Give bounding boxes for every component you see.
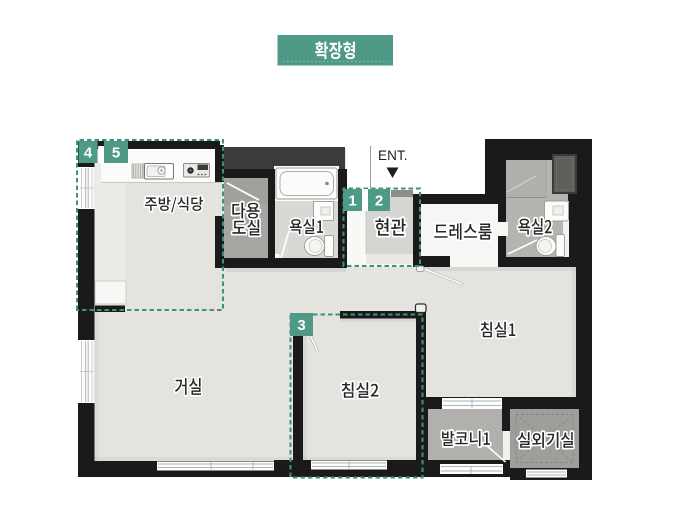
- svg-text:4: 4: [84, 144, 93, 161]
- svg-text:3: 3: [297, 317, 305, 334]
- svg-text:5: 5: [112, 144, 120, 161]
- svg-text:2: 2: [375, 192, 383, 209]
- svg-text:ENT.: ENT.: [378, 148, 408, 163]
- svg-text:1: 1: [348, 192, 356, 209]
